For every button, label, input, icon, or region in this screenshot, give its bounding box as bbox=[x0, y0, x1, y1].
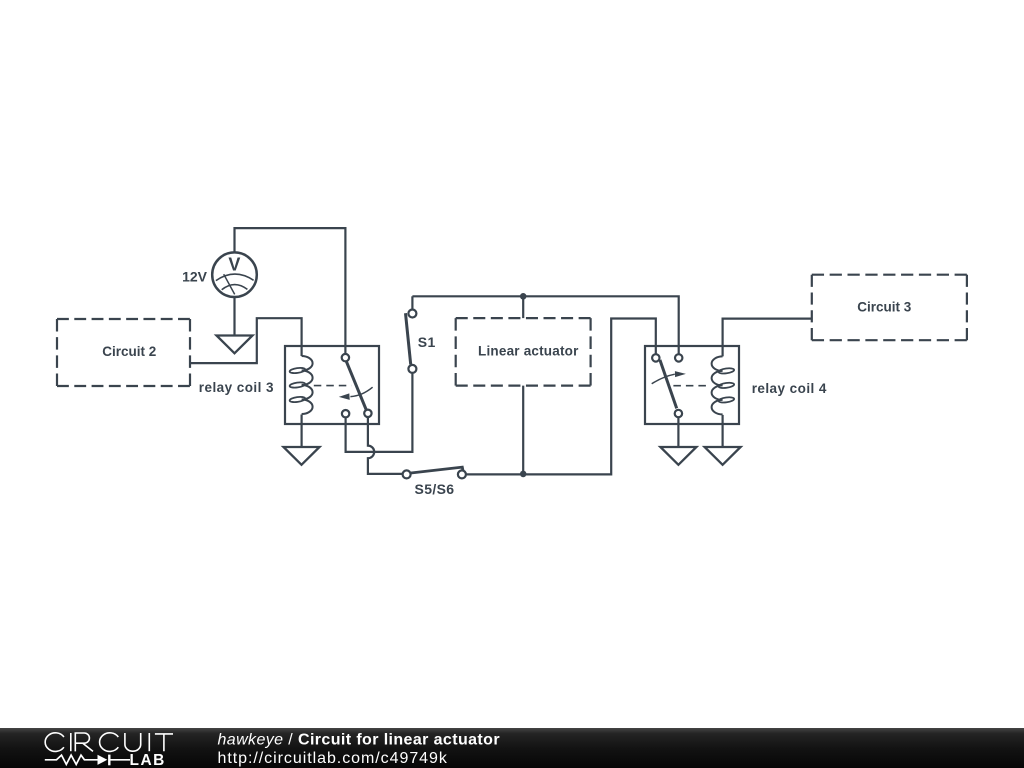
svg-text:relay coil 4: relay coil 4 bbox=[752, 381, 827, 396]
svg-text:Circuit 2: Circuit 2 bbox=[102, 344, 156, 359]
svg-text:Linear actuator: Linear actuator bbox=[478, 344, 579, 359]
svg-text:LAB: LAB bbox=[130, 752, 166, 768]
svg-text:S5/S6: S5/S6 bbox=[415, 481, 455, 497]
svg-text:hawkeye / Circuit for linear a: hawkeye / Circuit for linear actuator bbox=[218, 731, 500, 748]
svg-text:Circuit 3: Circuit 3 bbox=[857, 300, 912, 315]
svg-text:12V: 12V bbox=[182, 269, 208, 285]
svg-text:relay coil 3: relay coil 3 bbox=[199, 380, 274, 395]
svg-text:V: V bbox=[228, 255, 240, 275]
svg-text:http://circuitlab.com/c49749k: http://circuitlab.com/c49749k bbox=[218, 750, 448, 767]
svg-text:S1: S1 bbox=[418, 334, 436, 350]
